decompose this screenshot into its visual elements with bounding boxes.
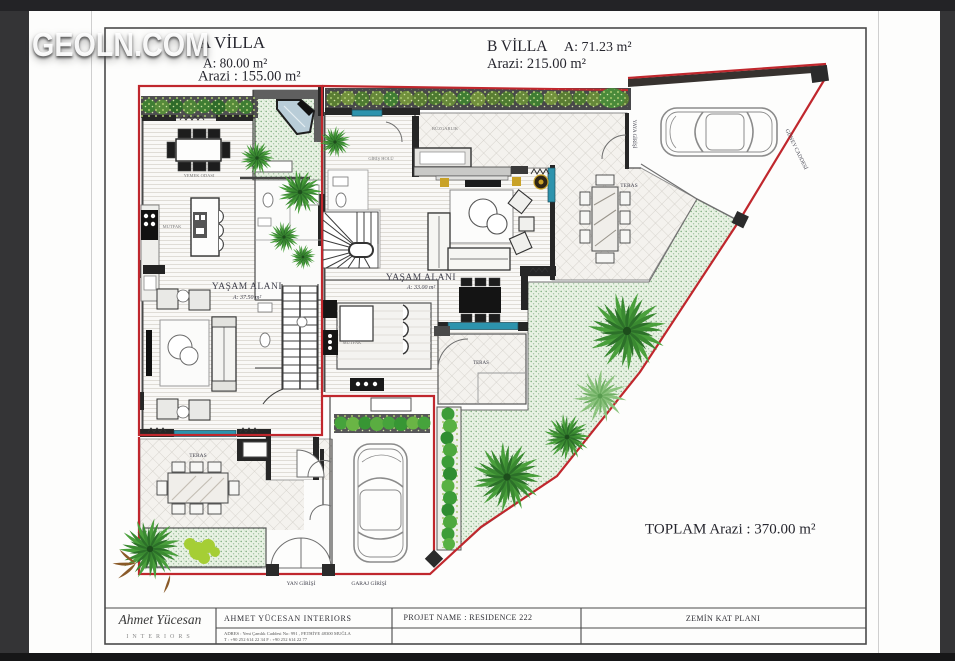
svg-text:GARAJ GİRİŞİ: GARAJ GİRİŞİ	[351, 580, 386, 587]
svg-text:AHMET YÜCESAN INTERIORS: AHMET YÜCESAN INTERIORS	[224, 614, 352, 623]
svg-text:RÜZGARLIK: RÜZGARLIK	[432, 126, 459, 131]
svg-text:Arazi: 215.00 m²: Arazi: 215.00 m²	[487, 56, 587, 72]
svg-text:TERAS: TERAS	[473, 361, 489, 366]
svg-text:TOPLAM Arazi : 370.00 m²: TOPLAM Arazi : 370.00 m²	[645, 522, 816, 538]
svg-text:GİRİŞ HOLÜ: GİRİŞ HOLÜ	[368, 156, 394, 161]
svg-text:Ahmet Yücesan: Ahmet Yücesan	[118, 612, 202, 627]
svg-text:A: 37.50 m²: A: 37.50 m²	[232, 295, 261, 301]
svg-text:TERAS: TERAS	[189, 453, 206, 459]
svg-text:MUTFAK: MUTFAK	[343, 340, 362, 345]
svg-text:A: 33.00 m²: A: 33.00 m²	[406, 285, 435, 291]
svg-text:A: 71.23 m²: A: 71.23 m²	[564, 40, 632, 55]
svg-text:B VİLLA: B VİLLA	[487, 38, 548, 55]
svg-text:YAŞAM ALANI: YAŞAM ALANI	[386, 273, 456, 283]
svg-text:INTERIORS: INTERIORS	[126, 634, 193, 640]
svg-text:Arazi : 155.00 m²: Arazi : 155.00 m²	[198, 69, 301, 85]
svg-text:TERAS: TERAS	[620, 183, 637, 189]
svg-text:ZEMİN KAT PLANI: ZEMİN KAT PLANI	[686, 614, 760, 623]
svg-text:YEMEK ODASI: YEMEK ODASI	[184, 173, 215, 178]
svg-text:YAYA GİRİŞİ: YAYA GİRİŞİ	[631, 120, 637, 149]
svg-text:YAŞAM ALANI: YAŞAM ALANI	[212, 282, 282, 292]
svg-text:PROJET NAME : RESIDENCE 222: PROJET NAME : RESIDENCE 222	[404, 613, 533, 622]
svg-text:T : +90 252 614 22 34 F : +9: T : +90 252 614 22 34 F : +90 252 614 22…	[224, 637, 308, 642]
svg-text:YAN GİRİŞİ: YAN GİRİŞİ	[287, 580, 316, 587]
svg-text:MUTFAK: MUTFAK	[163, 224, 182, 229]
